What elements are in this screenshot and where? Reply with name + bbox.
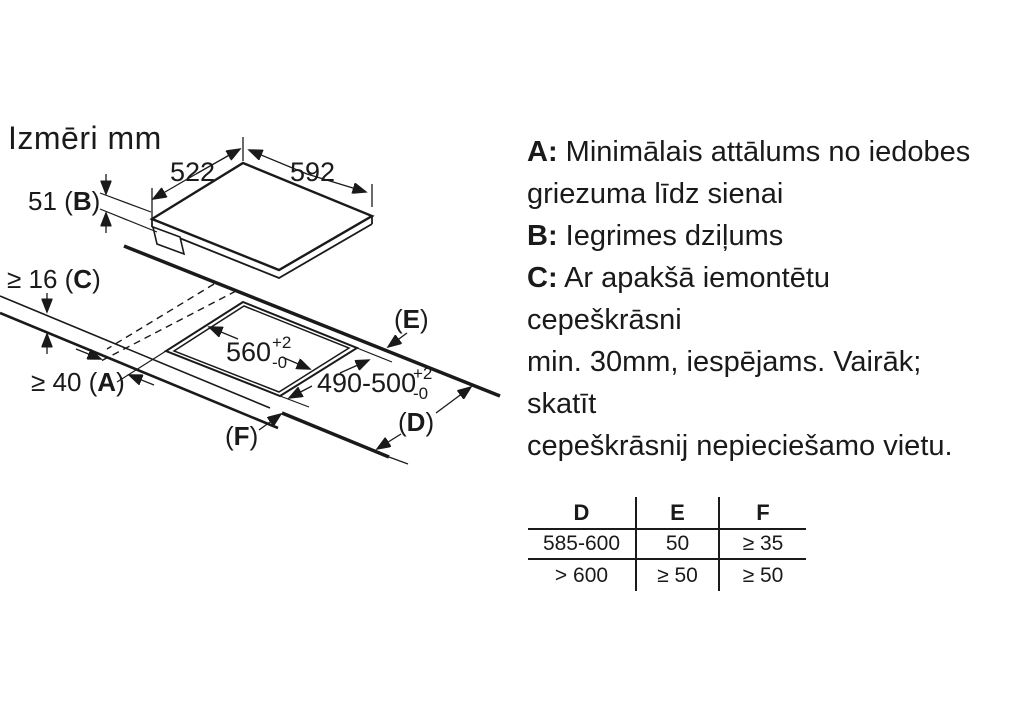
dim-490-500-value: 490-500 — [317, 368, 416, 398]
note-key-b: B: — [527, 220, 558, 252]
table-cell-f1: ≥ 35 — [720, 530, 806, 560]
table-cell-d2: > 600 — [528, 560, 637, 591]
dimension-51-b: 51 (B) — [28, 174, 157, 233]
table-header-f: F — [720, 497, 806, 530]
note-key-c: C: — [527, 262, 558, 294]
table-header-e: E — [637, 497, 720, 530]
label-f: (F) — [225, 414, 281, 451]
dim-560-tol-plus: +2 — [272, 333, 291, 352]
note-key-a: A: — [527, 136, 558, 168]
dimension-table: D E F 585-600 50 ≥ 35 > 600 ≥ 50 ≥ 50 — [528, 497, 806, 591]
label-f-text: (F) — [225, 421, 258, 451]
dim-560-tol-minus: -0 — [272, 353, 287, 372]
dim-522-label: 522 — [170, 157, 215, 187]
table-header-d: D — [528, 497, 637, 530]
b-extension-upper — [100, 193, 151, 212]
table-cell-e1: 50 — [637, 530, 720, 560]
dim-c-label: ≥ 16 (C) — [7, 264, 101, 294]
label-e-text: (E) — [394, 304, 429, 334]
dim-560-value: 560 — [226, 337, 271, 367]
dim-592-label: 592 — [290, 157, 335, 187]
note-line-c5: cepeškrāsnij nepieciešamo vietu. — [527, 425, 1019, 467]
dim-b-label: 51 (B) — [28, 186, 100, 216]
cabinet-front-edge-line — [282, 413, 389, 457]
label-e: (E) — [388, 304, 429, 347]
note-line-c2: cepeškrāsni — [527, 299, 1019, 341]
cabinet-front-edge-tail-line — [389, 457, 408, 464]
legend-notes: A: Minimālais attālums no iedobes griezu… — [527, 131, 1019, 467]
note-line-b: B: Iegrimes dziļums — [527, 215, 1019, 257]
dimension-40-a: ≥ 40 (A) — [31, 349, 154, 397]
table-cell-d1: 585-600 — [528, 530, 637, 560]
dimension-16-c: ≥ 16 (C) — [7, 264, 101, 354]
dim-490-500-tol-plus: +2 — [413, 364, 432, 383]
note-line-c3: min. 30mm, iespējams. Vairāk; — [527, 341, 1019, 383]
table-cell-f2: ≥ 50 — [720, 560, 806, 591]
dim-490-500-tol-minus: -0 — [413, 384, 428, 403]
note-line-a1: A: Minimālais attālums no iedobes — [527, 131, 1019, 173]
installation-diagram-page: Izmēri mm — [0, 0, 1024, 719]
note-line-a2: griezuma līdz sienai — [527, 173, 1019, 215]
cutout-edge-extension-bottom — [280, 396, 309, 407]
note-line-c4: skatīt — [527, 383, 1019, 425]
dim-a-label: ≥ 40 (A) — [31, 367, 125, 397]
table-cell-e2: ≥ 50 — [637, 560, 720, 591]
note-line-c1: C: Ar apakšā iemontētu — [527, 257, 1019, 299]
b-extension-lower — [100, 209, 157, 232]
label-d-text: (D) — [398, 407, 434, 437]
